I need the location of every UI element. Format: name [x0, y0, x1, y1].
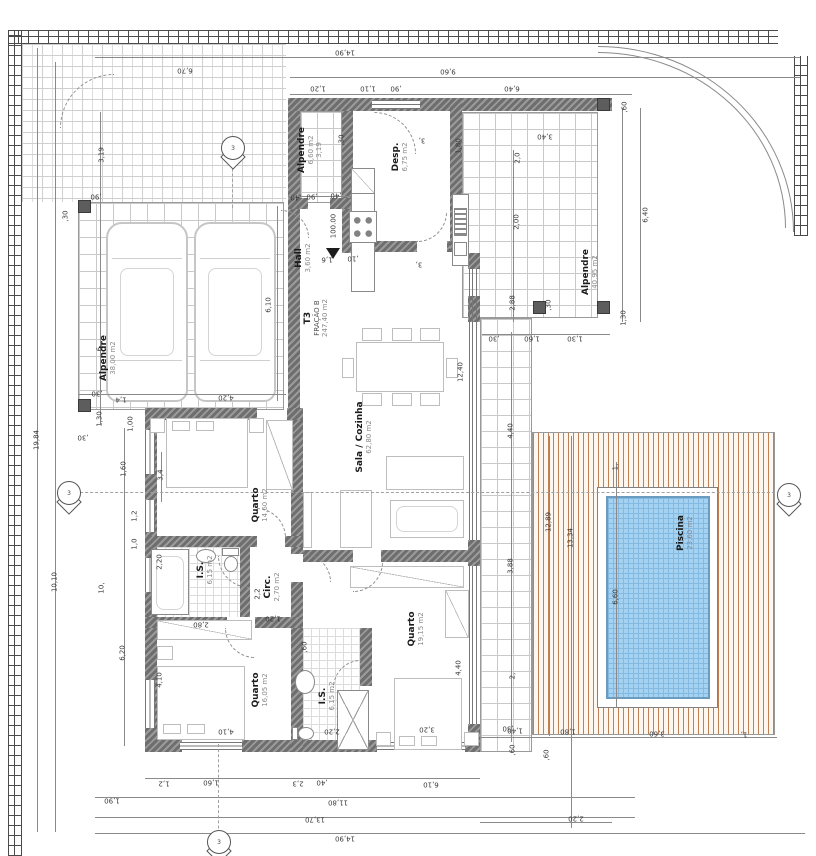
dimension-label: 2,80 [193, 621, 209, 628]
section-marker-circle: 3 [221, 136, 245, 160]
room-area: 62,80 m2 [365, 401, 373, 472]
terrace-floor-tiles [462, 112, 598, 318]
room-label-q3: Quarto19,15 m2 [407, 611, 425, 646]
dining-table [356, 342, 444, 392]
dimension-label: ,30 [546, 299, 553, 310]
stove [349, 211, 377, 243]
structural-post [597, 98, 610, 111]
dimension-label: 1,20 [265, 615, 281, 622]
dimension-label: ,30 [77, 434, 88, 441]
room-label-q1: Quarto14,60 m2 [251, 487, 269, 522]
dimension-label: 3,4 [158, 469, 165, 480]
dimension-label: 2,2 [255, 588, 262, 599]
structural-post [78, 200, 91, 213]
room-label-is1: I.S.6,15 m2 [196, 555, 214, 584]
dimension-label: 19,84 [34, 430, 41, 450]
tv-cabinet [303, 492, 312, 548]
dimension-label: ,30 [488, 335, 499, 342]
dimension-label: ,90 [90, 193, 101, 200]
chair [392, 393, 412, 406]
wall-segment [360, 628, 372, 686]
room-area: 19,15 m2 [417, 611, 425, 646]
room-label-circ: Circ.2,70 m2 [263, 572, 281, 601]
dimension-label: 10, [99, 582, 106, 593]
dimension-label: 1, [741, 731, 748, 738]
window [180, 742, 242, 750]
car-roof [120, 268, 174, 356]
nightstand [249, 418, 264, 433]
dimension-line [571, 436, 572, 828]
dimension-label: ,90 [306, 193, 317, 200]
dimension-label: 1,0 [132, 538, 139, 549]
room-name: Piscina [676, 515, 686, 551]
window [145, 430, 155, 474]
dimension-line [480, 737, 777, 738]
dimension-label: 3, [416, 261, 423, 268]
floor-plan: 14,909,601,201,10,906,406,70,903,19,306,… [0, 0, 816, 856]
room-name: Alpendre [297, 127, 307, 173]
dimension-line [482, 334, 610, 335]
dimension-label: 6,60 [613, 589, 620, 605]
dimension-label: ,90 [390, 85, 401, 92]
nightstand [157, 646, 173, 660]
dimension-line [95, 817, 635, 818]
pillow [187, 724, 205, 734]
dimension-line [511, 332, 512, 742]
pillow [172, 421, 190, 431]
dimension-line [290, 77, 800, 78]
wall-segment [287, 408, 303, 420]
dimension-label: 1,2 [158, 780, 169, 787]
window [469, 566, 477, 724]
dimension-label: ,60 [622, 101, 629, 112]
rug-inner [396, 506, 458, 532]
dimension-label: ,60 [544, 749, 551, 760]
room-label-terrace: Alpendre40,95 m2 [581, 249, 599, 295]
pillow [196, 421, 214, 431]
dimension-line [95, 833, 805, 834]
dimension-label: 6,10 [423, 781, 439, 788]
dimension-label: 4,40 [456, 660, 463, 676]
dimension-label: 3,19 [99, 147, 106, 163]
room-area: 23,60 m2 [686, 515, 694, 551]
sink [295, 670, 315, 694]
appliance [454, 242, 467, 256]
boundary-wall [8, 30, 22, 856]
dimension-label: 10,10 [52, 572, 59, 592]
dimension-label: 6,40 [643, 207, 650, 223]
dimension-label: 1,40 [507, 727, 523, 734]
dimension-label: 3,40 [537, 133, 553, 140]
dimension-label: 1,00 [128, 416, 135, 432]
level-marker-label: 100.00 [331, 214, 338, 239]
kitchen-cabinet [351, 168, 375, 194]
wall-segment [285, 536, 303, 547]
pool-water [606, 496, 710, 699]
room-area: 40,95 m2 [591, 249, 599, 295]
chair [420, 328, 440, 341]
dimension-label: 9,60 [440, 68, 456, 75]
sofa [340, 490, 372, 548]
level-marker-icon [326, 248, 340, 259]
room-name: Sala / Cozinha [355, 401, 365, 472]
dimension-label: 1,90 [104, 797, 120, 804]
dimension-line [145, 778, 480, 779]
nightstand [150, 418, 165, 433]
dimension-label: 1, [613, 464, 620, 471]
wall-segment [468, 253, 480, 269]
nightstand [376, 732, 391, 746]
dimension-label: 1,10 [360, 85, 376, 92]
dimension-label: 1,60 [524, 335, 540, 342]
dimension-line [55, 62, 56, 832]
dimension-label: ,40 [330, 192, 341, 199]
dimension-label: 3,60 [649, 730, 665, 737]
dimension-label: 3, [419, 137, 426, 144]
wall-segment [145, 536, 257, 547]
dimension-label: 12,40 [458, 362, 465, 382]
structural-post [78, 399, 91, 412]
door-swing-arc [417, 212, 447, 242]
walkway-floor-tiles [480, 318, 532, 752]
chair [392, 328, 412, 341]
car-line [112, 360, 182, 361]
room-area: 6,15 m2 [206, 555, 214, 584]
room-name: Alpendre [99, 335, 109, 381]
room-name: T3 [303, 299, 313, 337]
wardrobe [266, 420, 293, 490]
room-area: 16,05 m2 [261, 672, 269, 707]
dimension-label: 1,60 [203, 779, 219, 786]
dimension-label: 2,20 [324, 728, 340, 735]
room-name: Desp. [391, 142, 401, 171]
wall-segment [330, 198, 352, 209]
dimension-line [95, 57, 800, 58]
room-label-garage: Alpendre38,00 m2 [99, 335, 117, 381]
room-area: 247,40 m2 [321, 299, 329, 337]
window [145, 500, 155, 532]
pillow [163, 724, 181, 734]
room-label-q2: Quarto16,05 m2 [251, 672, 269, 707]
dimension-line [480, 822, 612, 823]
dimension-line [78, 394, 286, 395]
dimension-label: 11,80 [328, 799, 348, 806]
dimension-label: 6,40 [504, 85, 520, 92]
pillow [399, 736, 415, 746]
room-note: 3,19 [315, 127, 323, 173]
room-label-piscina: Piscina23,60 m2 [676, 515, 694, 551]
room-name: I.S. [196, 555, 206, 584]
room-area: 6,15 m2 [328, 681, 336, 710]
dimension-label: ,30 [339, 134, 346, 145]
window [469, 269, 477, 540]
room-label-sala: Sala / Cozinha62,80 m2 [355, 401, 373, 472]
dimension-label: 2,20 [568, 815, 584, 822]
wardrobe [445, 590, 469, 638]
room-name: Quarto [251, 672, 261, 707]
room-label-hall: Hall3,60 m2 [294, 243, 312, 272]
wall-segment [145, 740, 182, 752]
window [372, 100, 420, 109]
pillow [421, 736, 437, 746]
room-area: 38,00 m2 [109, 335, 117, 381]
room-name: I.S. [318, 681, 328, 710]
room-area: 6,60 m2 [307, 127, 315, 173]
dimension-label: 6,10 [266, 297, 273, 313]
dimension-label: 2,00 [514, 214, 521, 230]
car-line [112, 258, 182, 259]
dimension-label: 2,20 [157, 554, 164, 570]
room-area: 3,60 m2 [304, 243, 312, 272]
dimension-label: 1,20 [310, 85, 326, 92]
car-line [200, 258, 270, 259]
dimension-label: 4,20 [218, 394, 234, 401]
room-name: Quarto [251, 487, 261, 522]
dimension-label: 1,30 [567, 335, 583, 342]
room-name: Alpendre [581, 249, 591, 295]
dimension-label: ,10 [347, 255, 358, 262]
dimension-label: 1,80 [560, 728, 576, 735]
dimension-label: 14,90 [335, 49, 355, 56]
dimension-label: 1,30 [97, 411, 104, 427]
dimension-label: 1,30 [621, 310, 628, 326]
dimension-line [549, 436, 550, 736]
dimension-label: 12,89 [546, 512, 553, 532]
boundary-wall [794, 56, 808, 236]
shower [337, 690, 369, 750]
dimension-label: 2, [510, 673, 517, 680]
dimension-label: 13,34 [568, 528, 575, 548]
dimension-label: 1,2 [132, 510, 139, 521]
window [145, 680, 155, 728]
dimension-label: 6,20 [120, 645, 127, 661]
dimension-label: 2,88 [510, 295, 517, 311]
room-name: Quarto [407, 611, 417, 646]
section-marker-circle: 3 [57, 481, 81, 505]
dimension-label: 2,0 [515, 152, 522, 163]
dimension-line [290, 94, 632, 95]
dimension-label: ,60 [510, 744, 517, 755]
door-swing-arc [225, 628, 255, 658]
room-label-porch: Alpendre6,60 m23,19 [297, 127, 323, 173]
chair [362, 328, 382, 341]
room-area: 14,60 m2 [261, 487, 269, 522]
chair [420, 393, 440, 406]
appliance [454, 208, 467, 236]
room-name: Hall [294, 243, 304, 272]
room-area: 2,70 m2 [273, 572, 281, 601]
door-swing-arc [281, 210, 309, 238]
dimension-label: 4,40 [508, 423, 515, 439]
room-area: 6,75 m2 [401, 142, 409, 171]
dimension-label: 6,70 [177, 67, 193, 74]
dimension-label: ,30 [63, 210, 70, 221]
room-label-desp: Desp.6,75 m2 [391, 142, 409, 171]
structural-post [597, 301, 610, 314]
room-label-fracao: T3FRAÇÃO B247,40 m2 [303, 299, 329, 337]
boundary-wall [8, 30, 778, 44]
wall-segment [381, 550, 480, 562]
dimension-label: 1,80 [456, 138, 463, 154]
dimension-label: ,30 [91, 390, 102, 397]
dimension-label: 3,88 [508, 558, 515, 574]
dimension-label: 2,3 [292, 780, 303, 787]
toilet-tank [222, 548, 239, 556]
dimension-label: ,40 [316, 779, 327, 786]
chair [342, 358, 354, 378]
dimension-label: ,60 [302, 641, 309, 652]
dimension-label: 13,70 [305, 816, 325, 823]
room-subtitle: FRAÇÃO B [313, 299, 321, 337]
sofa [386, 456, 464, 490]
dimension-label: ,40 [290, 194, 301, 201]
room-name: Circ. [263, 572, 273, 601]
toilet-bowl [298, 727, 314, 740]
car-line [200, 360, 270, 361]
dimension-label: 3,20 [419, 726, 435, 733]
nightstand [464, 732, 479, 746]
dimension-line [277, 206, 278, 401]
section-marker-circle: 3 [207, 830, 231, 854]
dimension-label: 1,4 [115, 396, 126, 403]
dimension-label: 4,10 [157, 672, 164, 688]
dimension-label: 14,90 [335, 835, 355, 842]
dimension-label: 1,60 [121, 461, 128, 477]
section-centerline [60, 492, 790, 493]
car-roof [208, 268, 262, 356]
road-corner-curve-inner [598, 52, 786, 228]
section-marker-circle: 3 [777, 483, 801, 507]
dimension-label: 4,10 [218, 728, 234, 735]
dimension-line [616, 462, 617, 708]
room-label-is2: I.S.6,15 m2 [318, 681, 336, 710]
dimension-line [622, 108, 623, 322]
dimension-line [95, 797, 635, 798]
